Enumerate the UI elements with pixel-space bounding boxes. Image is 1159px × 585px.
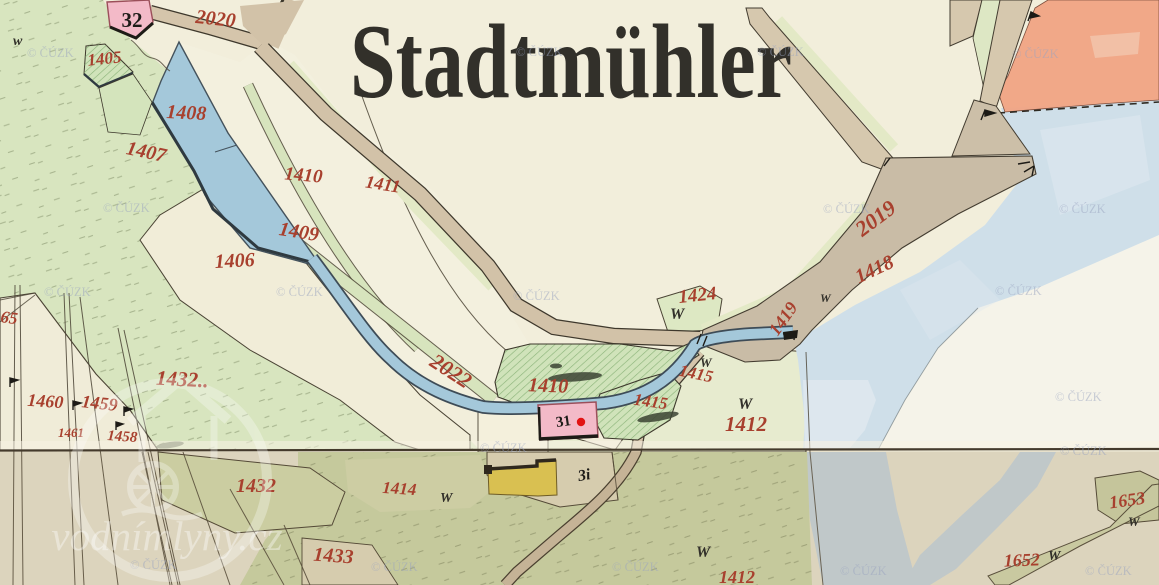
svg-text:1408: 1408 [166,101,207,125]
svg-text:1412: 1412 [719,567,755,585]
svg-text:1410: 1410 [284,163,324,187]
svg-text:© ČÚZK: © ČÚZK [276,285,323,299]
svg-text:32: 32 [122,8,143,32]
svg-text:© ČÚZK: © ČÚZK [1085,564,1132,578]
svg-text:© ČÚZK: © ČÚZK [103,201,150,215]
svg-text:w: w [13,34,23,49]
svg-text:© ČÚZK: © ČÚZK [44,285,91,299]
svg-text:W: W [820,291,832,305]
svg-text:© ČÚZK: © ČÚZK [1059,202,1106,216]
svg-text:© ČÚZK: © ČÚZK [480,441,527,455]
svg-text:W: W [440,491,454,506]
svg-text:© ČÚZK: © ČÚZK [757,45,804,59]
svg-text:© ČÚZK: © ČÚZK [371,560,418,574]
svg-text:1406: 1406 [214,249,255,273]
svg-text:1410: 1410 [528,374,569,397]
svg-text:W: W [696,544,712,561]
svg-text:1652: 1652 [1003,549,1040,570]
svg-text:W: W [1128,514,1141,529]
svg-text:© ČÚZK: © ČÚZK [823,202,870,216]
svg-text:65: 65 [0,307,19,328]
svg-text:31: 31 [555,413,572,431]
svg-text:© ČÚZK: © ČÚZK [1055,390,1102,404]
svg-text:1405: 1405 [87,47,123,70]
svg-text:Stadtmühler: Stadtmühler [350,3,792,120]
svg-text:© ČÚZK: © ČÚZK [1012,47,1059,61]
svg-text:© ČÚZK: © ČÚZK [516,45,563,59]
svg-text:W: W [700,355,713,370]
svg-text:W: W [738,396,754,413]
svg-text:1433: 1433 [313,544,354,569]
svg-text:1458: 1458 [107,428,139,446]
svg-text:© ČÚZK: © ČÚZK [513,289,560,303]
svg-text:1412: 1412 [725,412,768,436]
svg-text:2020: 2020 [194,6,237,32]
svg-text:1414: 1414 [382,478,417,499]
svg-text:© ČÚZK: © ČÚZK [1060,444,1107,458]
svg-text:© ČÚZK: © ČÚZK [27,46,74,60]
svg-text:W: W [1048,549,1062,564]
svg-text:1424: 1424 [677,283,717,308]
svg-text:1460: 1460 [27,390,64,412]
svg-text:© ČÚZK: © ČÚZK [612,560,659,574]
svg-text:W: W [670,306,686,323]
svg-text:vodnímlyny.cz: vodnímlyny.cz [51,513,282,559]
svg-text:© ČÚZK: © ČÚZK [840,564,887,578]
svg-text:© ČÚZK: © ČÚZK [995,284,1042,298]
